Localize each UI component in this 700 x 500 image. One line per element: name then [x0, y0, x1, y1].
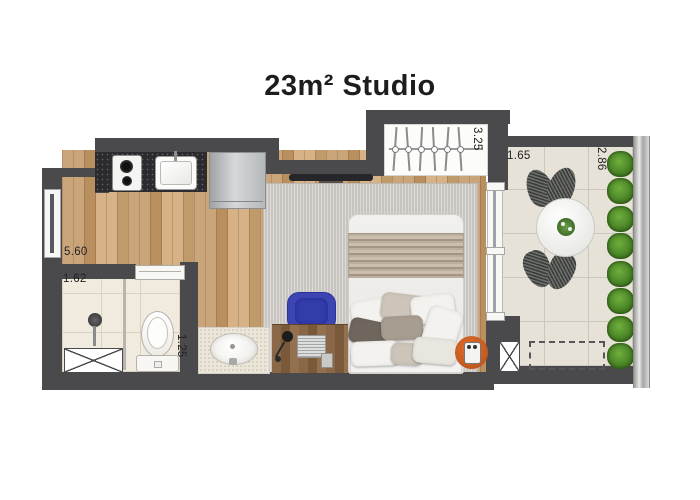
plant-centerpiece-icon	[557, 218, 575, 236]
hanger-icon	[457, 127, 462, 171]
dim-studio-side: 5.60	[64, 246, 88, 258]
kitchen-sink-icon	[155, 156, 197, 190]
wall-wardrobe-left	[366, 110, 384, 176]
planter-bush	[607, 178, 634, 204]
dim-balcony-depth: 2.86	[595, 147, 607, 171]
cooktop-icon	[112, 155, 142, 191]
wall-top-kitchen	[95, 138, 277, 152]
planter-bush	[607, 206, 634, 232]
planter-bush	[607, 316, 634, 342]
hanger-icon	[392, 127, 397, 171]
shower-head-icon	[88, 313, 102, 327]
door-jamb-top	[486, 182, 505, 191]
planter-bush	[607, 261, 634, 287]
ac-unit-dashed-area	[529, 341, 605, 370]
floor-plan-canvas: 23m² Studio	[0, 0, 700, 500]
lamp-base	[275, 356, 281, 362]
balcony-table	[536, 198, 595, 257]
lamp-arm	[275, 342, 285, 358]
hanger-icon	[432, 127, 436, 171]
wall-balcony-top	[508, 136, 648, 147]
dim-bathroom-side: 1.62	[63, 273, 87, 285]
faucet-icon	[174, 151, 177, 161]
wall-wardrobe-right	[488, 110, 508, 190]
notepad	[321, 353, 333, 368]
device-dot	[467, 345, 471, 349]
dim-balcony-width: 1.65	[507, 150, 531, 162]
flower-dot	[561, 222, 565, 226]
shower-tray-crossed-box	[64, 348, 123, 373]
flush-button	[154, 361, 162, 368]
refrigerator	[209, 152, 266, 209]
blanket	[348, 233, 464, 278]
drain-icon	[230, 344, 235, 349]
planter-bush	[607, 343, 634, 369]
wall-bottom	[42, 372, 494, 390]
flower-dot	[568, 227, 572, 231]
vanity-counter	[198, 327, 270, 374]
burner-large-icon	[120, 160, 133, 173]
vanity-faucet-icon	[229, 358, 237, 365]
bathroom-sliding-door	[135, 265, 185, 280]
dim-bathroom-depth: 1.25	[175, 334, 187, 358]
toilet-seat	[147, 317, 168, 349]
plan-title: 23m² Studio	[0, 70, 700, 103]
window	[44, 189, 61, 258]
planter-bush	[607, 151, 634, 177]
hanger-icon	[405, 127, 410, 171]
pillow	[412, 336, 458, 366]
desk	[272, 324, 348, 373]
planter-bush	[607, 288, 634, 314]
hanger-icon	[419, 127, 423, 171]
glass-railing	[633, 136, 650, 388]
glass-partition	[123, 279, 126, 370]
tv	[289, 174, 373, 181]
toilet	[141, 311, 174, 357]
dim-wardrobe: 3.25	[471, 127, 483, 151]
speaker-device	[464, 342, 481, 364]
orange-side-table	[455, 336, 488, 369]
sink-basin	[160, 161, 192, 185]
duct-crossed-box	[499, 341, 520, 372]
window-glass	[50, 194, 54, 253]
burner-small-icon	[122, 176, 132, 186]
toilet-tank	[136, 355, 179, 372]
tv-stand	[319, 181, 343, 183]
door-line	[139, 271, 181, 272]
desk-lamp-icon	[282, 331, 293, 342]
shower-pipe	[93, 326, 96, 346]
planter-bush	[607, 233, 634, 259]
device-dot	[473, 345, 477, 349]
door-mullion	[486, 247, 505, 255]
wall-left-connector	[62, 168, 98, 177]
door-jamb-bottom	[486, 312, 505, 321]
hanger-icon	[444, 127, 449, 171]
